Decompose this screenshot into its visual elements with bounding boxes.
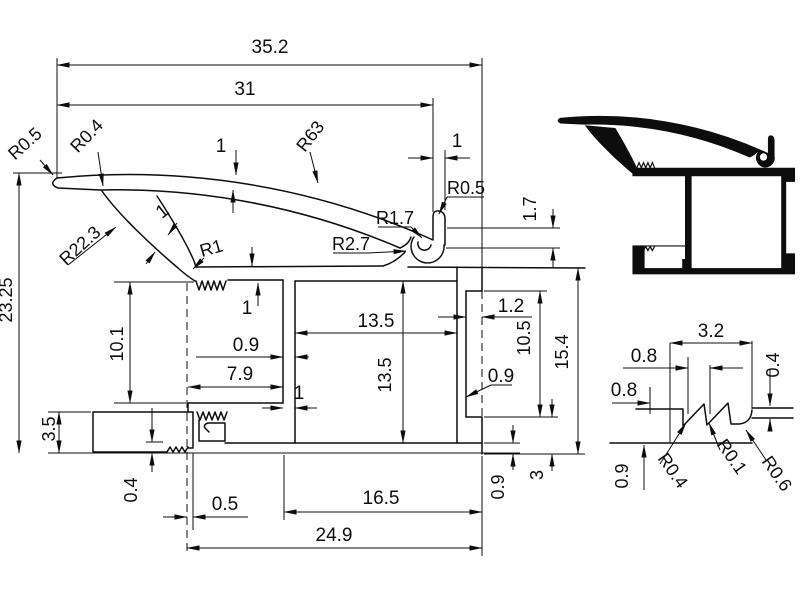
detail-dim-tooth-pitch: 0.8: [631, 346, 657, 367]
radius-wing: R63: [292, 117, 328, 155]
radius-tip-under: R0.4: [66, 115, 107, 156]
dim-mid-cavity-height: 13.5: [375, 357, 395, 392]
dim-right-height: 15.4: [552, 334, 572, 369]
engineering-drawing: 35.2 31 23.25 R0.5 R0.4 R63 1 1 R22.3 R1…: [0, 0, 800, 600]
dim-bottom-width: 24.9: [316, 525, 353, 546]
dim-wing-thickness: 1: [216, 136, 227, 157]
dim-overall-width: 35.2: [252, 37, 289, 58]
detail-radius-flank: R0.4: [654, 449, 692, 492]
dim-bottom-wall: 0.9: [488, 474, 508, 499]
dim-foot-offset: 0.5: [212, 494, 238, 515]
dim-hook-gap: 1.7: [520, 196, 540, 221]
detail-radius-valley: R0.1: [713, 435, 751, 478]
radius-leg: R22.3: [55, 222, 104, 269]
dim-slot-depth: 1.2: [498, 296, 524, 317]
dim-bottom-lip: 3: [527, 470, 547, 480]
detail-radius-corner: R0.6: [758, 452, 796, 495]
radius-hook-inner: R1.7: [376, 208, 414, 228]
silhouette-view: [558, 116, 800, 274]
dim-mid-right-wall: 0.9: [488, 366, 514, 387]
dim-upper-width: 31: [234, 79, 255, 100]
dim-overall-height: 23.25: [0, 277, 16, 322]
dim-left-cavity-height: 10.1: [107, 326, 127, 361]
dim-left-cavity-width: 7.9: [227, 364, 253, 385]
detail-dim-base-thickness: 0.9: [612, 463, 632, 488]
dim-lip-thickness: 1: [452, 131, 463, 152]
dim-top-wall: 1: [242, 298, 253, 319]
radius-tip: R0.5: [4, 123, 46, 163]
dim-divider-wall: 1: [294, 383, 305, 404]
drawing-page: 35.2 31 23.25 R0.5 R0.4 R63 1 1 R22.3 R1…: [0, 0, 800, 600]
detail-dim-ledge-step: 0.4: [763, 352, 783, 377]
dim-left-wall: 0.9: [233, 335, 259, 356]
dim-inner-bottom-width: 16.5: [363, 488, 400, 509]
dim-mid-cavity-width: 13.5: [358, 311, 395, 332]
radius-leg-root: R1: [198, 235, 226, 261]
radius-lip: R0.5: [447, 178, 485, 198]
dim-foot-tooth-depth: 0.4: [121, 477, 141, 502]
dim-leg-thickness: 1: [152, 200, 173, 223]
dim-slot-height: 10.5: [514, 320, 534, 355]
detail-dim-width: 3.2: [698, 321, 724, 342]
radius-hook-outer: R2.7: [332, 234, 370, 254]
dim-foot-height: 3.5: [39, 416, 59, 441]
detail-view-outline: [610, 403, 793, 443]
detail-dim-tooth-offset: 0.8: [611, 380, 637, 401]
